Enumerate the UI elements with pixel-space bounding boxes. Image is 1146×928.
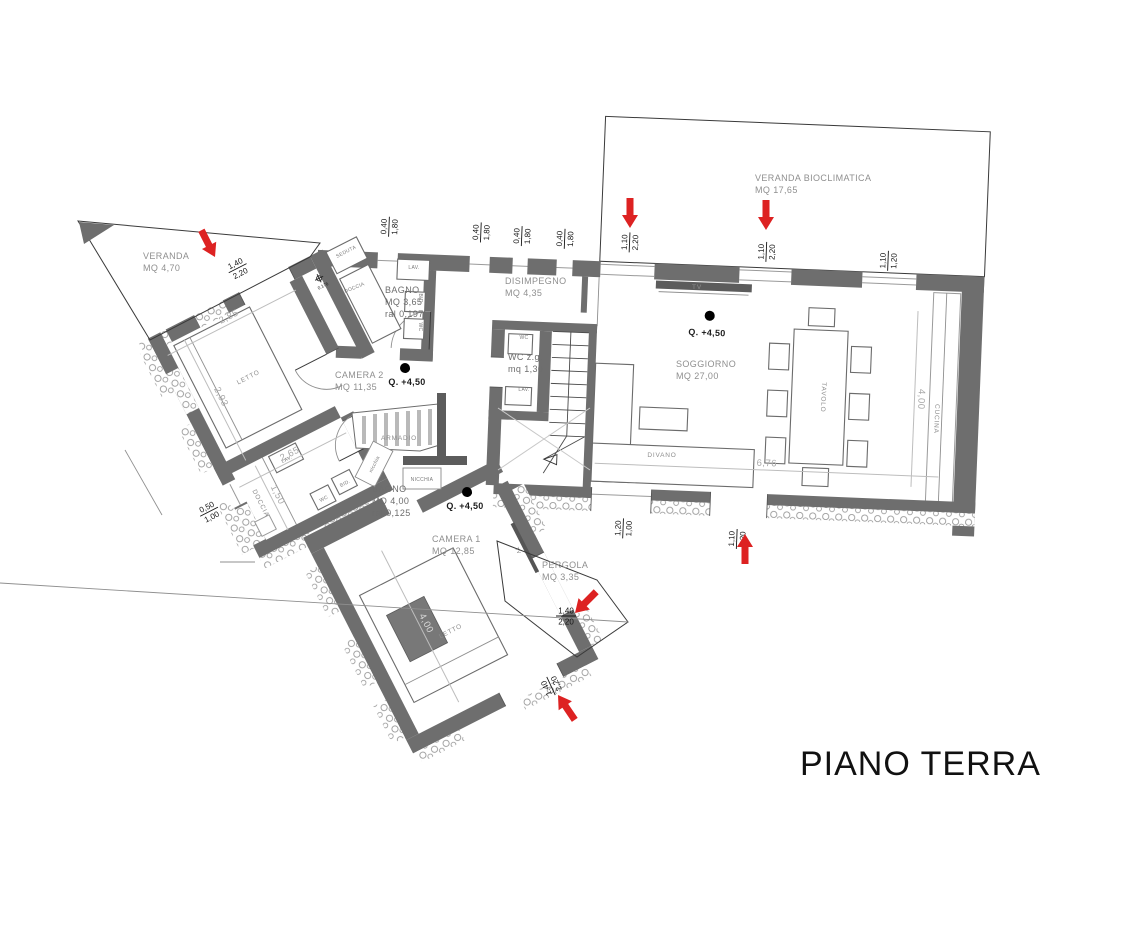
label-bagno2: BAGNO <box>372 484 407 494</box>
svg-text:1,10: 1,10 <box>878 252 888 268</box>
coffee-table <box>639 407 688 431</box>
dim-window: 1,201,00 <box>613 518 634 539</box>
dim-bath-window: 0,501,00 <box>196 499 223 526</box>
svg-text:1,80: 1,80 <box>482 224 492 240</box>
living-block: TAVOLO CUCINA 6,76 4,00 Q. +4,50 0,401,8… <box>307 105 991 558</box>
wardrobe-label: ARMADIO <box>381 435 417 442</box>
dim-door: 1,102,20 <box>756 242 777 263</box>
page-title: PIANO TERRA <box>800 745 1041 783</box>
veranda-bioclimatica-outline <box>600 116 991 276</box>
svg-text:1,50: 1,50 <box>268 483 287 506</box>
svg-text:MQ 4,70: MQ 4,70 <box>143 263 180 273</box>
svg-text:0,40: 0,40 <box>555 230 565 246</box>
dim-door: 1,102,20 <box>620 232 641 253</box>
svg-text:0,40: 0,40 <box>512 227 522 243</box>
label-camera2: CAMERA 2 <box>335 370 384 380</box>
arrow-north-door-1 <box>622 198 638 228</box>
level-marker-bagno1: Q. +4,50 <box>388 360 425 387</box>
wardrobe <box>352 404 443 451</box>
svg-text:1,40: 1,40 <box>558 607 574 616</box>
label-veranda-bioclimatica: VERANDA BIOCLIMATICA <box>755 173 871 183</box>
dim-window: 0,401,80 <box>471 222 492 243</box>
svg-text:1,00: 1,00 <box>624 520 634 536</box>
dim-entrance-door: 1,402,20 <box>224 255 251 282</box>
svg-text:1,80: 1,80 <box>390 218 400 234</box>
bidet-bagno1-label: BID. <box>417 294 423 305</box>
dim-window: 1,101,20 <box>878 250 899 271</box>
sliding-door-panel-v <box>437 393 446 459</box>
svg-text:NICCHIA: NICCHIA <box>411 477 434 483</box>
sliding-door-panel-h <box>403 456 467 465</box>
svg-text:Q. +4,50: Q. +4,50 <box>446 501 483 511</box>
kitchen-label: CUCINA <box>932 404 940 434</box>
label-pergola: PERGOLA <box>542 560 588 570</box>
svg-text:MQ 4,35: MQ 4,35 <box>505 288 542 298</box>
table-label: TAVOLO <box>819 382 827 412</box>
arrow-north-door-2 <box>758 200 774 230</box>
svg-text:MQ 3,35: MQ 3,35 <box>542 572 579 582</box>
svg-text:1,80: 1,80 <box>523 228 533 244</box>
dining-table <box>764 306 873 488</box>
svg-text:MQ 12,85: MQ 12,85 <box>432 546 475 556</box>
svg-text:1,10: 1,10 <box>756 243 766 259</box>
svg-text:2,20: 2,20 <box>767 244 777 260</box>
label-soggiorno: SOGGIORNO <box>676 359 736 369</box>
label-bagno1: BAGNO <box>385 285 420 295</box>
veranda-corner-wall <box>79 222 114 244</box>
svg-text:MQ 17,65: MQ 17,65 <box>755 185 798 195</box>
partition-jamb <box>581 277 588 313</box>
south-wall <box>493 483 976 526</box>
svg-text:MQ 11,35: MQ 11,35 <box>335 382 377 392</box>
svg-text:1,10: 1,10 <box>727 530 737 546</box>
svg-text:ral 0,125: ral 0,125 <box>372 508 411 518</box>
svg-text:0,40: 0,40 <box>471 224 481 240</box>
label-disimpegno: DISIMPEGNO <box>505 276 567 286</box>
shower-bagno2-label: DOCCIA <box>250 488 270 518</box>
boundary-tick <box>125 450 162 515</box>
svg-text:1,20: 1,20 <box>889 253 899 269</box>
level-marker-soggiorno: Q. +4,50 <box>688 307 726 338</box>
floor-plan-page: TAVOLO CUCINA 6,76 4,00 Q. +4,50 0,401,8… <box>0 0 1146 928</box>
dim-window: 0,401,80 <box>512 226 533 247</box>
svg-text:MQ 3,65: MQ 3,65 <box>385 297 422 307</box>
dim-window: 0,401,80 <box>379 216 400 237</box>
sink-bagno1-label: LAV. <box>408 265 419 271</box>
svg-text:1,10: 1,10 <box>620 234 630 250</box>
sofa-label: DIVANO <box>647 452 676 459</box>
wc-bagno1-label: WC <box>417 323 423 332</box>
label-veranda: VERANDA <box>143 251 189 261</box>
svg-text:2,20: 2,20 <box>631 234 641 250</box>
floor-plan-drawing: TAVOLO CUCINA 6,76 4,00 Q. +4,50 0,401,8… <box>0 0 1146 928</box>
label-camera1: CAMERA 1 <box>432 534 481 544</box>
label-wc-zg: WC z.g. <box>508 352 543 362</box>
svg-text:mq 1,30: mq 1,30 <box>508 364 543 374</box>
svg-text:1,20: 1,20 <box>613 520 623 536</box>
svg-text:6,76: 6,76 <box>756 458 777 470</box>
arrow-camera1-door <box>551 691 581 725</box>
svg-text:ral 0,197: ral 0,197 <box>385 309 424 319</box>
svg-text:1,80: 1,80 <box>566 231 576 247</box>
svg-text:4,00: 4,00 <box>915 389 927 410</box>
svg-text:MQ 27,00: MQ 27,00 <box>676 371 719 381</box>
svg-text:MQ 4,00: MQ 4,00 <box>372 496 409 506</box>
svg-text:0,40: 0,40 <box>379 218 389 234</box>
wc-wczg-label: WC <box>520 335 529 341</box>
dim-window: 0,401,80 <box>555 228 576 249</box>
svg-text:Q. +4,50: Q. +4,50 <box>688 327 726 338</box>
tv-soggiorno-label: TV <box>692 284 702 291</box>
svg-text:2,20: 2,20 <box>558 618 574 627</box>
niche: NICCHIA <box>403 468 441 489</box>
svg-text:Q. +4,50: Q. +4,50 <box>388 377 425 387</box>
sink-wczg-label: LAV. <box>518 387 529 393</box>
